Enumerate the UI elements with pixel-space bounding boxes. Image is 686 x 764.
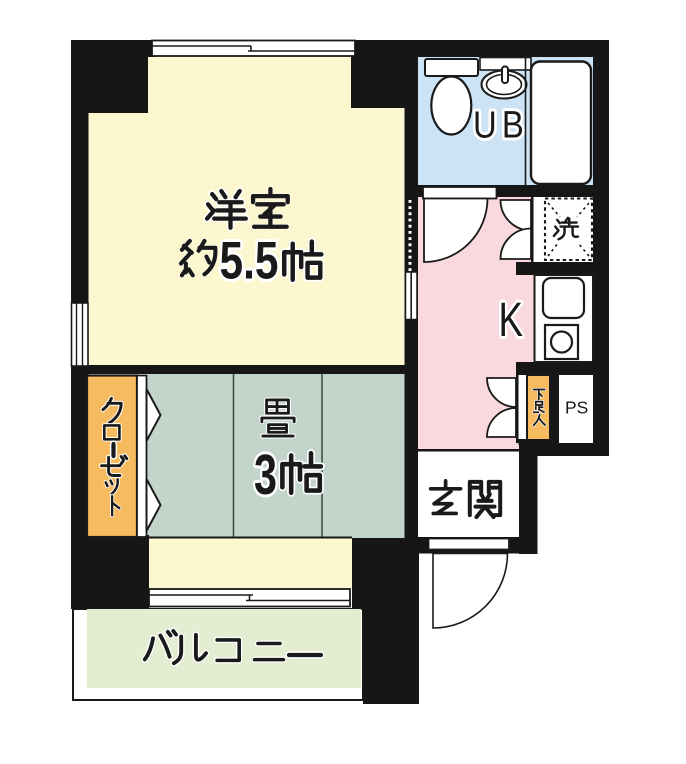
svg-text:K: K: [499, 293, 524, 347]
svg-text:UB: UB: [473, 105, 529, 147]
svg-text:PS: PS: [565, 398, 588, 418]
svg-text:5.5: 5.5: [220, 232, 279, 291]
svg-text:3: 3: [254, 443, 277, 507]
